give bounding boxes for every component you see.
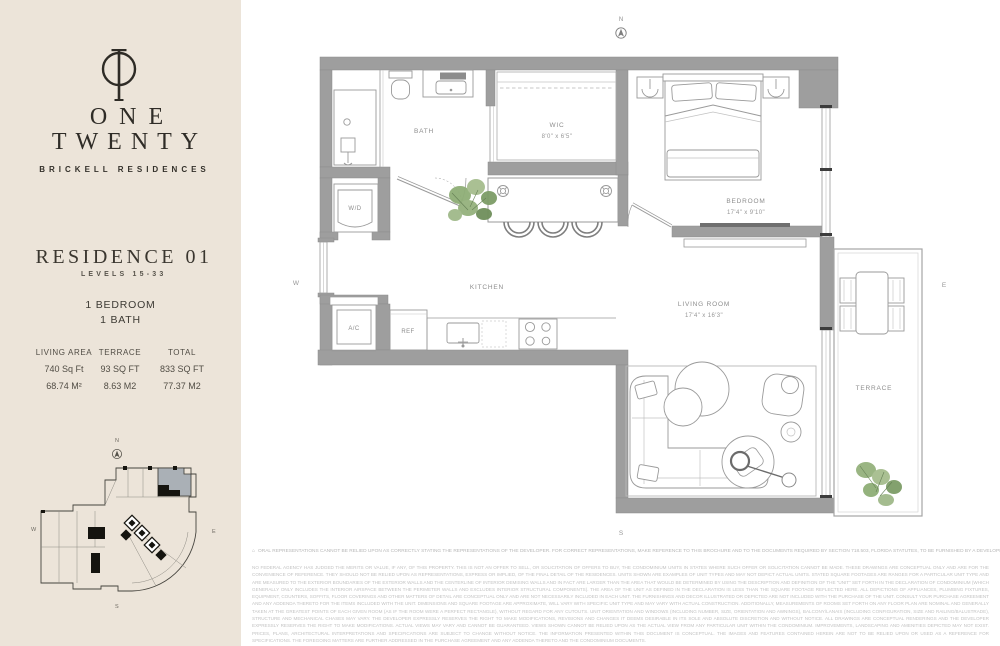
- living-room-label: LIVING ROOM: [678, 301, 730, 308]
- bedroom-count: 1 BEDROOM: [0, 298, 241, 313]
- living-room: LIVING ROOM 17'4" x 16'3": [626, 301, 816, 496]
- residence-levels: LEVELS 15-33: [0, 271, 244, 278]
- dining-set: [840, 272, 904, 334]
- floor-plan: N W E S: [240, 0, 1000, 546]
- sidebar: ONE TWENTY BRICKELL RESIDENCES RESIDENCE…: [0, 0, 241, 646]
- bed: [637, 74, 789, 180]
- stove-icon: [519, 319, 557, 349]
- wic-label: WIC: [549, 122, 564, 129]
- keyplan-compass-n: N: [115, 438, 119, 444]
- disclaimer-line1-text: ORAL REPRESENTATIONS CANNOT BE RELIED UP…: [258, 549, 1000, 554]
- bedroom-label: BEDROOM: [726, 198, 765, 205]
- wic-dims: 8'0" x 6'5": [542, 134, 573, 140]
- stat-imperial: 833 SQ FT: [152, 364, 212, 374]
- ref-label: REF: [401, 329, 414, 335]
- stat-label: TOTAL: [152, 348, 212, 357]
- kitchen-sink-icon: [447, 323, 479, 348]
- brand-tagline: BRICKELL RESIDENCES: [0, 165, 245, 174]
- kitchen-island: [488, 178, 618, 237]
- plant-graphic: [856, 462, 902, 506]
- keyplan-core-elements: [41, 466, 177, 573]
- plan-compass-w: W: [293, 280, 300, 287]
- bath-label: BATH: [414, 128, 434, 135]
- plan-compass-s: S: [619, 530, 624, 537]
- bedroom: BEDROOM 17'4" x 9'10": [628, 74, 806, 247]
- legal-disclaimer: ⌂ORAL REPRESENTATIONS CANNOT BE RELIED U…: [252, 548, 989, 644]
- tv-console: [684, 239, 806, 247]
- bathroom: BATH: [380, 70, 494, 167]
- terrace-label: TERRACE: [856, 385, 893, 392]
- keyplan-highlighted-unit: [158, 468, 191, 496]
- stat-label: TERRACE: [92, 348, 148, 357]
- equal-housing-icon: ⌂: [252, 548, 255, 554]
- walk-in-closet: WIC 8'0" x 6'5": [497, 72, 616, 160]
- stat-terrace: TERRACE 93 SQ FT 8.63 M2: [92, 348, 148, 391]
- stat-imperial: 93 SQ FT: [92, 364, 148, 374]
- plan-compass-e: E: [942, 282, 947, 289]
- residence-config: 1 BEDROOM 1 BATH: [0, 298, 241, 328]
- keyplan-elevator-diamonds: [120, 515, 166, 560]
- vanity-sink-icon: [423, 70, 473, 97]
- brand-logo-icon: [94, 46, 144, 112]
- brand-name-line2: TWENTY: [0, 129, 250, 156]
- stat-metric: 8.63 M2: [92, 381, 148, 391]
- brochure-page: { "brand": { "name_line1": "ONE", "name_…: [0, 0, 1000, 646]
- bedroom-dims: 17'4" x 9'10": [727, 210, 765, 216]
- terrace: TERRACE: [834, 249, 922, 516]
- plan-compass-n: N: [619, 17, 623, 23]
- toilet-icon: [389, 71, 412, 99]
- keyplan-compass-e: E: [212, 529, 216, 535]
- shower-room: [334, 90, 376, 165]
- kitchen-label: KITCHEN: [470, 284, 504, 291]
- armchair: [760, 372, 805, 417]
- living-room-dims: 17'4" x 16'3": [685, 313, 723, 319]
- stat-metric: 77.37 M2: [152, 381, 212, 391]
- bedroom-door: [628, 203, 672, 227]
- tv-icon: [700, 223, 790, 227]
- disclaimer-body: NO FEDERAL AGENCY HAS JUDGED THE MERITS …: [252, 564, 989, 644]
- keyplan-compass-w: W: [31, 527, 37, 533]
- building-key-plan: N W E S: [28, 428, 228, 628]
- disclaimer-line1: ⌂ORAL REPRESENTATIONS CANNOT BE RELIED U…: [252, 548, 989, 555]
- ac-label: A/C: [348, 326, 359, 332]
- kitchen: A/C REF KITCHEN: [330, 284, 616, 351]
- keyplan-compass-s: S: [115, 604, 119, 610]
- wd-label: W/D: [348, 206, 361, 212]
- keyplan-north-arrow-icon: [112, 449, 121, 458]
- coffee-tables: [664, 362, 729, 426]
- bar-stools: [504, 222, 602, 237]
- brand-name-line1: ONE: [0, 104, 253, 131]
- residence-title: RESIDENCE 01: [0, 246, 245, 269]
- washer-dryer: W/D: [334, 184, 378, 232]
- north-arrow-icon: [616, 28, 626, 38]
- dishwasher-icon: [482, 321, 506, 347]
- stat-total: TOTAL 833 SQ FT 77.37 M2: [152, 348, 212, 391]
- bath-count: 1 BATH: [0, 313, 241, 328]
- side-table: [781, 422, 801, 442]
